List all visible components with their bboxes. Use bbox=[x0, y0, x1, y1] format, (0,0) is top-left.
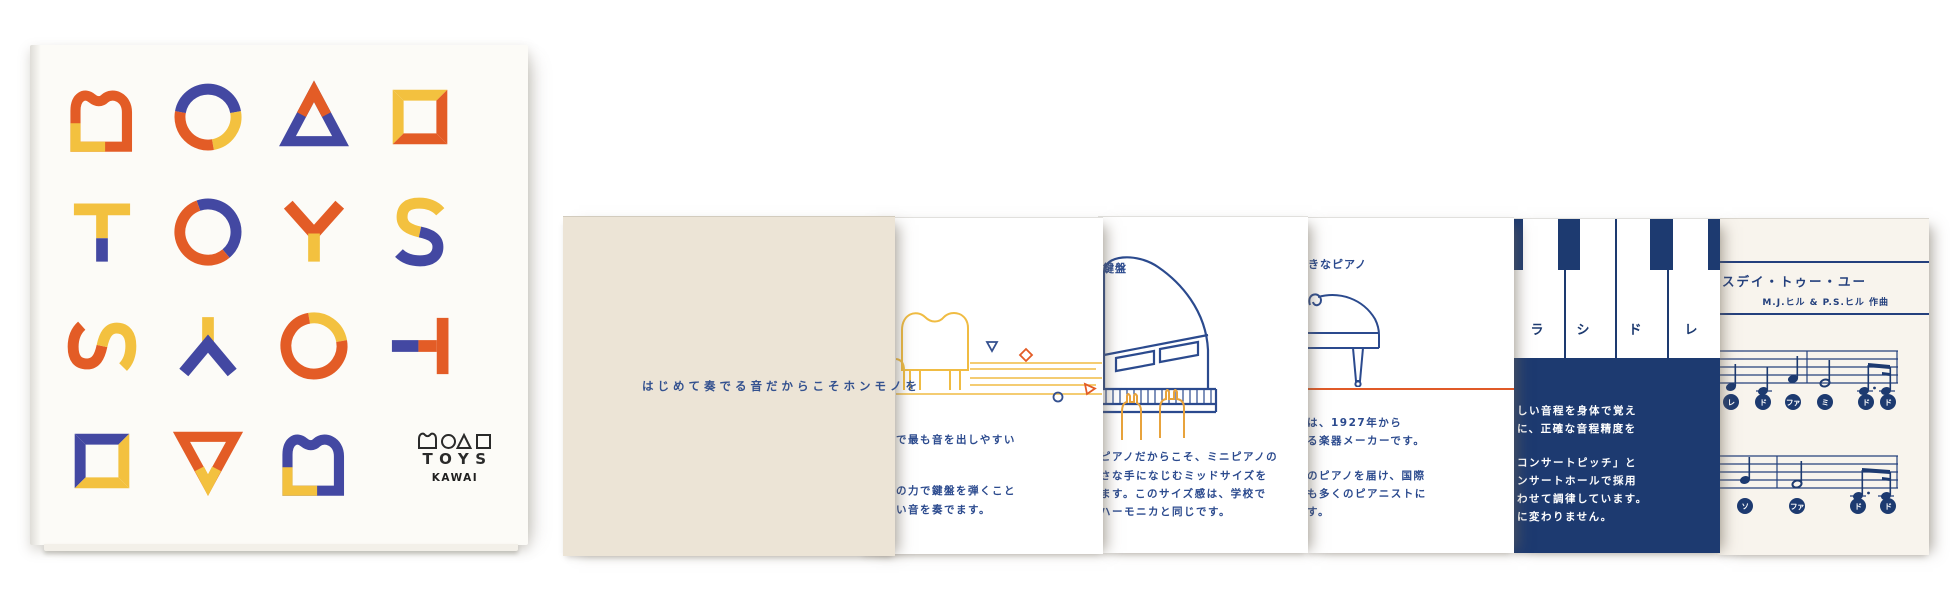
circle-icon bbox=[442, 435, 455, 448]
maker-line: る楽器メーカーです。 bbox=[1307, 432, 1425, 450]
grand-piano-outline-icon bbox=[287, 440, 338, 491]
pitch-line: に変わりません。 bbox=[1517, 508, 1613, 526]
black-key bbox=[1708, 219, 1720, 270]
pitch-line: わせて調律しています。 bbox=[1517, 490, 1648, 508]
key-label: ド bbox=[1628, 319, 1641, 338]
music-staves bbox=[1716, 344, 1929, 506]
score-credit: M.J.ヒル & P.S.ヒル 作曲 bbox=[1762, 295, 1889, 308]
score-rule-bottom bbox=[1716, 313, 1929, 315]
letter-s-rotated-icon bbox=[73, 326, 131, 367]
note-name-badge: ミ bbox=[1817, 394, 1833, 410]
maker-line: も多くのピアニストに bbox=[1307, 485, 1427, 503]
square-icon bbox=[477, 435, 490, 448]
note-name-badge: ド bbox=[1880, 394, 1896, 410]
keyboard-graphic: ラ シ ド レ bbox=[1511, 219, 1720, 358]
logo-shapes-icon bbox=[417, 430, 493, 450]
letter-t-rotated-icon bbox=[392, 318, 443, 374]
circle-icon bbox=[180, 89, 236, 145]
sound-line: い音を奏でます。 bbox=[896, 501, 991, 519]
ground-line bbox=[1305, 388, 1514, 390]
note-name-badge: ド bbox=[1880, 498, 1896, 514]
page-maker: きなピアノ は、1927年から る楽器メーカーです。 のピアノを届け、国際 も多… bbox=[1305, 217, 1514, 553]
pitch-line: ンサートホールで採用 bbox=[1517, 472, 1637, 490]
pitch-text-panel: しい音程を身体で覚え に、正確な音程精度を コンサートピッチ」と ンサートホール… bbox=[1511, 358, 1720, 553]
piano-label: きなピアノ bbox=[1308, 256, 1367, 272]
page-intro: はじめて奏でる音だからこそホンモノを bbox=[563, 216, 895, 556]
booklet-cover: TOYS KAWAI bbox=[30, 45, 528, 545]
triangle-icon bbox=[287, 91, 340, 141]
intro-tagline: はじめて奏でる音だからこそホンモノを bbox=[642, 377, 921, 395]
grand-piano-front-illustration bbox=[1098, 252, 1308, 442]
score-title: スデイ・トゥー・ユー bbox=[1722, 271, 1867, 290]
toy-piano-yellow-illustration bbox=[896, 304, 1104, 426]
logo-brand: KAWAI bbox=[416, 472, 494, 484]
triangle-down-icon bbox=[987, 342, 997, 351]
key-label: レ bbox=[1684, 319, 1697, 338]
grand-piano-side-illustration bbox=[1305, 291, 1514, 387]
booklet-pages-edge bbox=[44, 544, 518, 551]
page-score: スデイ・トゥー・ユー M.J.ヒル & P.S.ヒル 作曲 bbox=[1716, 218, 1929, 555]
note-name-badge: ド bbox=[1755, 394, 1771, 410]
sound-line: で最も音を出しやすい bbox=[896, 431, 1016, 449]
key-label: ラ bbox=[1530, 319, 1543, 338]
size-line: ハーモニカと同じです。 bbox=[1100, 503, 1231, 521]
letter-s-icon bbox=[399, 203, 440, 261]
black-key bbox=[1650, 219, 1673, 270]
square-icon bbox=[393, 90, 448, 145]
letter-o-icon bbox=[180, 204, 236, 260]
diamond-icon bbox=[1020, 349, 1032, 361]
logo-wordmark: TOYS bbox=[416, 451, 494, 468]
size-line: さな手になじむミッドサイズを bbox=[1100, 467, 1268, 485]
note-name-badge: ファ bbox=[1785, 394, 1801, 410]
letter-y-inverted-icon bbox=[184, 317, 232, 372]
page-size: 鍵盤 ピアノだからこそ、ミニピアノの さな手になじむミッドサイズを ます。このサ… bbox=[1098, 216, 1308, 553]
note-name-badge: レ bbox=[1723, 394, 1739, 410]
sound-line: の力で鍵盤を弾くこと bbox=[896, 482, 1016, 500]
piano-icon bbox=[419, 434, 436, 448]
pitch-line: しい音程を身体で覚え bbox=[1517, 402, 1637, 420]
note-name-badge: ド bbox=[1850, 498, 1866, 514]
triangle-inverted-icon bbox=[181, 437, 234, 485]
size-line: ます。このサイズ感は、学校で bbox=[1100, 485, 1267, 503]
score-rule-top bbox=[1716, 261, 1929, 263]
pitch-line: に、正確な音程精度を bbox=[1517, 420, 1637, 438]
triangle-icon bbox=[458, 435, 471, 448]
key-label: シ bbox=[1576, 319, 1589, 338]
booklet-scene: TOYS KAWAI はじめて奏でる音だからこそホンモノを で最も音を出しやすい… bbox=[0, 0, 1950, 593]
letter-y-icon bbox=[288, 205, 339, 262]
page-pitch: ラ シ ド レ しい音程を身体で覚え に、正確な音程精度を コンサートピッチ」と… bbox=[1511, 218, 1720, 553]
maker-line: は、1927年から bbox=[1307, 414, 1402, 432]
maker-line: す。 bbox=[1307, 503, 1330, 521]
brand-logo: TOYS KAWAI bbox=[416, 430, 494, 484]
hands-illustration bbox=[1122, 390, 1184, 440]
pitch-line: コンサートピッチ」と bbox=[1517, 454, 1637, 472]
maker-line: のピアノを届け、国際 bbox=[1307, 467, 1426, 485]
black-key bbox=[1558, 219, 1580, 270]
note-name-badge: ソ bbox=[1737, 498, 1753, 514]
square-icon bbox=[75, 434, 130, 489]
note-name-badge: ファ bbox=[1789, 498, 1805, 514]
key-separator bbox=[1615, 219, 1617, 358]
size-line: ピアノだからこそ、ミニピアノの bbox=[1100, 448, 1278, 466]
note-name-badge: ド bbox=[1858, 394, 1874, 410]
letter-t-icon bbox=[74, 209, 130, 261]
letter-o-icon bbox=[286, 318, 342, 374]
grand-piano-outline-icon bbox=[75, 96, 126, 147]
